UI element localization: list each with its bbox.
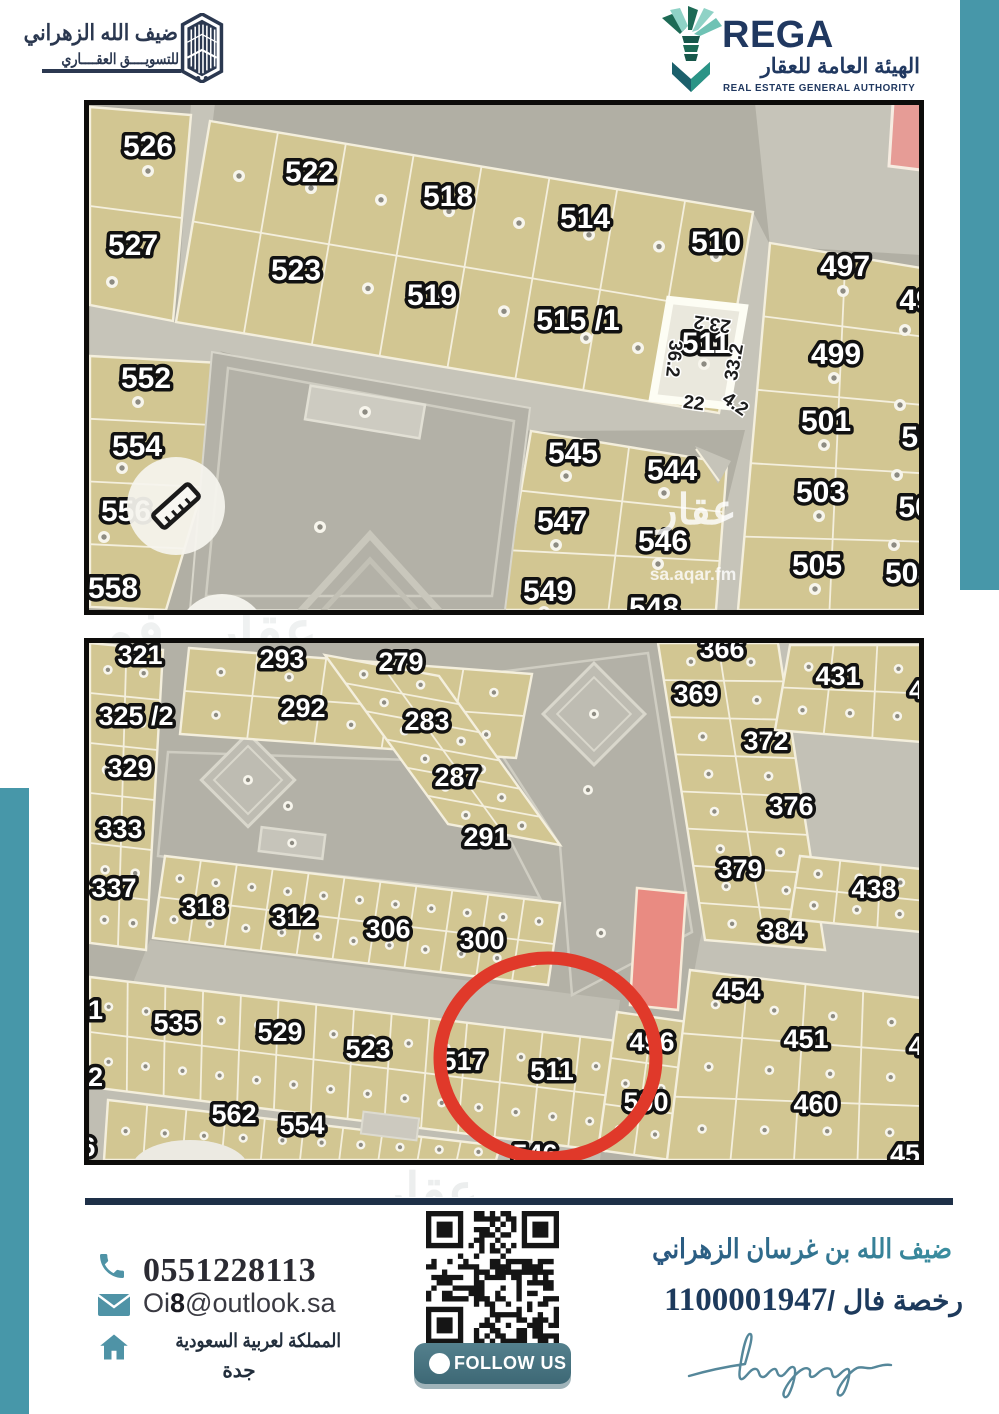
svg-text:515 /1: 515 /1 — [536, 304, 619, 337]
svg-text:379: 379 — [717, 854, 762, 884]
svg-text:511: 511 — [530, 1056, 574, 1086]
svg-text:287: 287 — [434, 762, 479, 792]
svg-text:549: 549 — [523, 575, 573, 608]
svg-text:291: 291 — [463, 822, 508, 852]
svg-text:REGA: REGA — [722, 14, 834, 56]
svg-text:293: 293 — [259, 644, 304, 674]
svg-text:300: 300 — [459, 925, 504, 955]
svg-text:22: 22 — [682, 392, 706, 416]
svg-text:529: 529 — [257, 1017, 302, 1047]
svg-text:454: 454 — [715, 976, 760, 1006]
svg-text:527: 527 — [108, 229, 158, 262]
svg-text:REAL ESTATE GENERAL AUTHORITY: REAL ESTATE GENERAL AUTHORITY — [723, 83, 915, 94]
svg-text:318: 318 — [181, 892, 226, 922]
svg-text:526: 526 — [123, 130, 173, 163]
svg-text:329: 329 — [107, 753, 152, 783]
svg-text:518: 518 — [423, 180, 473, 213]
svg-text:523: 523 — [345, 1034, 390, 1064]
svg-text:438: 438 — [851, 874, 896, 904]
svg-text:376: 376 — [768, 791, 813, 821]
svg-text:431: 431 — [815, 661, 860, 691]
svg-text:552: 552 — [121, 362, 171, 395]
svg-text:519: 519 — [407, 279, 457, 312]
svg-text:337: 337 — [91, 873, 136, 903]
svg-text:501: 501 — [801, 405, 851, 438]
svg-text:517: 517 — [441, 1046, 486, 1076]
svg-text:الهيئة العامة للعقار: الهيئة العامة للعقار — [759, 55, 920, 79]
svg-text:497: 497 — [820, 250, 870, 283]
svg-text:562: 562 — [211, 1099, 256, 1129]
svg-text:523: 523 — [271, 254, 321, 287]
svg-text:503: 503 — [796, 476, 846, 509]
svg-text:279: 279 — [378, 647, 423, 677]
svg-text:333: 333 — [97, 814, 142, 844]
svg-text:504: 504 — [885, 557, 924, 590]
svg-text:514: 514 — [560, 202, 610, 235]
svg-text:36.2: 36.2 — [661, 339, 686, 378]
svg-text:369: 369 — [673, 679, 718, 709]
svg-text:321: 321 — [117, 640, 162, 670]
svg-text:510: 510 — [691, 226, 741, 259]
svg-text:554: 554 — [279, 1110, 324, 1140]
svg-text:عقار: عقار — [654, 486, 736, 535]
svg-text:558: 558 — [88, 572, 138, 605]
svg-text:545: 545 — [548, 437, 598, 470]
svg-text:499: 499 — [811, 338, 861, 371]
svg-text:535: 535 — [153, 1008, 198, 1038]
svg-text:505: 505 — [792, 549, 842, 582]
svg-text:460: 460 — [793, 1089, 838, 1119]
svg-text:292: 292 — [280, 693, 325, 723]
svg-text:283: 283 — [404, 706, 449, 736]
svg-text:544: 544 — [647, 454, 697, 487]
svg-text:sa.aqar.fm: sa.aqar.fm — [650, 564, 737, 584]
svg-text:522: 522 — [285, 156, 335, 189]
svg-text:554: 554 — [112, 430, 162, 463]
svg-text:312: 312 — [271, 902, 316, 932]
svg-text:325 /2: 325 /2 — [98, 701, 173, 731]
svg-text:547: 547 — [537, 505, 587, 538]
svg-text:306: 306 — [365, 914, 410, 944]
svg-text:451: 451 — [783, 1024, 828, 1054]
